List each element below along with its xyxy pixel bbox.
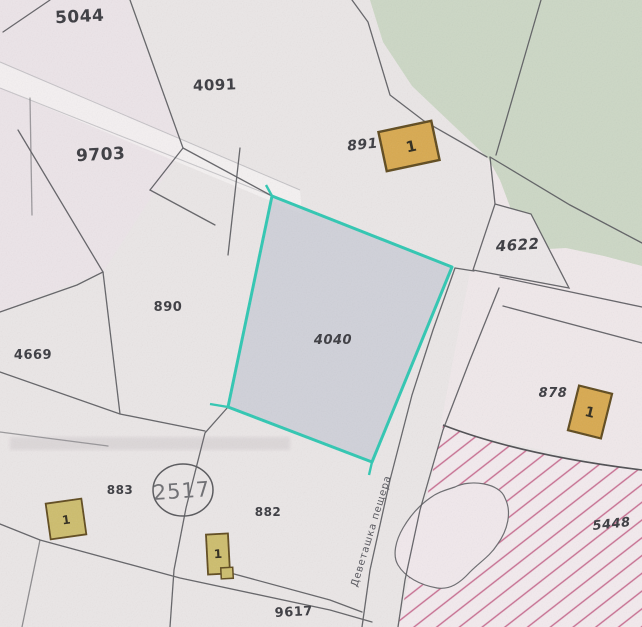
scan-noise-overlay [0, 0, 642, 627]
cadastral-map-viewport[interactable]: 1 1 1 1 2517 5044 4091 9703 [0, 0, 642, 627]
cadastral-map: 1 1 1 1 2517 5044 4091 9703 [0, 0, 642, 627]
